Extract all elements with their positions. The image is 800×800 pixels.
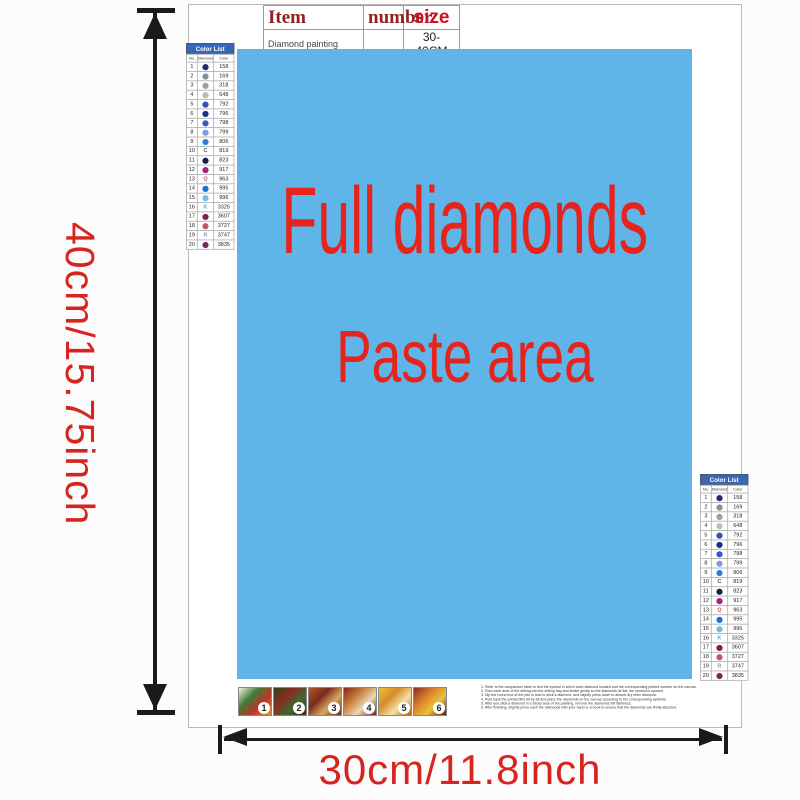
horizontal-arrow-right-cap [724,725,728,754]
color-list-row: 183727 [186,221,234,230]
color-list-row: 1158 [700,493,748,502]
color-list-row: 14995 [700,615,748,624]
step-number-badge: 4 [363,702,375,714]
diamond-dot-icon [716,504,722,510]
step-thumbnail: 2 [273,687,307,716]
diamond-symbol-cell: C [711,577,727,586]
color-row-number: 13 [186,174,197,183]
step-number-badge: 6 [433,702,445,714]
color-code: 318 [214,81,234,90]
diamond-symbol-cell: C [197,146,213,155]
diamond-letter-symbol: Q [717,607,721,612]
arrow-right-icon [699,728,723,746]
color-row-number: 10 [700,577,711,586]
color-row-number: 4 [700,521,711,530]
step-number-badge: 5 [398,702,410,714]
color-row-number: 11 [186,156,197,165]
color-list-row: 3318 [186,81,234,90]
product-size-diagram: 40cm/15.75inch Item number size Diamond … [0,0,800,800]
color-row-number: 15 [700,624,711,633]
color-row-number: 19 [700,662,711,671]
color-code: 792 [214,100,234,109]
diamond-dot-icon [716,644,722,650]
diamond-dot-icon [202,195,208,201]
diamond-symbol-cell [711,568,727,577]
colorlist-no-header: No. [700,485,711,493]
color-row-number: 6 [700,540,711,549]
color-row-number: 17 [186,212,197,221]
step-number-badge: 1 [258,702,270,714]
vertical-arrow-bottom-cap [137,710,175,715]
color-code: 3325 [214,203,234,212]
diamond-dot-icon [202,223,208,229]
color-list-rows: 11582169331846485792679677988799980610C8… [186,62,234,249]
diamond-dot-icon [716,570,722,576]
color-code: 963 [728,605,748,614]
colorlist-diamond-header: Diamond [711,485,727,493]
color-list-row: 203835 [700,671,748,680]
color-list-left: Color List No. Diamond Color 11582169331… [186,43,234,250]
horizontal-arrow-left-cap [218,725,222,754]
color-row-number: 3 [186,81,197,90]
diamond-symbol-cell: Q [197,174,213,183]
diamond-dot-icon [716,551,722,557]
color-code: 796 [728,540,748,549]
diamond-symbol-cell: K [711,634,727,643]
color-code: 917 [214,165,234,174]
diamond-symbol-cell: R [197,231,213,240]
diamond-symbol-cell [197,81,213,90]
color-row-number: 9 [700,568,711,577]
color-code: 996 [214,193,234,202]
color-list-row: 5792 [186,100,234,109]
diamond-dot-icon [202,185,208,191]
colorlist-diamond-header: Diamond [197,54,213,62]
diamond-symbol-cell [197,156,213,165]
diamond-symbol-cell [711,596,727,605]
diamond-symbol-cell [197,128,213,137]
color-list-row: 3318 [700,512,748,521]
diamond-symbol-cell [197,109,213,118]
color-row-number: 17 [700,643,711,652]
diamond-letter-symbol: Q [203,176,207,181]
color-row-number: 2 [186,71,197,80]
color-row-number: 12 [186,165,197,174]
diamond-symbol-cell [711,559,727,568]
color-code: 799 [728,559,748,568]
color-row-number: 14 [700,615,711,624]
color-row-number: 9 [186,137,197,146]
diamond-letter-symbol: R [204,233,208,238]
color-row-number: 15 [186,193,197,202]
color-list-row: 2169 [186,71,234,80]
diamond-symbol-cell [711,512,727,521]
diamond-dot-icon [202,120,208,126]
color-list-row: 4648 [700,521,748,530]
color-list-row: 15996 [700,624,748,633]
color-code: 3607 [214,212,234,221]
diamond-dot-icon [202,64,208,70]
diamond-symbol-cell [711,652,727,661]
diamond-letter-symbol: C [204,148,208,153]
instructions-text: 1. Refer to the comparison table to find… [481,685,714,710]
diamond-dot-icon [716,598,722,604]
colorlist-color-header: Color [214,54,234,62]
color-list-title: Color List [700,474,748,485]
diamond-symbol-cell [197,118,213,127]
color-list-right: Color List No. Diamond Color 11582169331… [700,474,748,681]
color-list-row: 6796 [186,109,234,118]
step-thumbnails-strip: 123456 [238,687,447,716]
diamond-dot-icon [202,110,208,116]
color-row-number: 5 [700,531,711,540]
arrow-up-icon [143,13,167,39]
color-list-row: 15996 [186,193,234,202]
color-list-row: 11823 [186,156,234,165]
diamond-letter-symbol: R [718,664,722,669]
colorlist-color-header: Color [728,485,748,493]
step-number-badge: 3 [328,702,340,714]
color-list-row: 9806 [186,137,234,146]
diamond-symbol-cell [197,240,213,249]
color-row-number: 14 [186,184,197,193]
color-code: 648 [214,90,234,99]
color-row-number: 11 [700,587,711,596]
color-list-row: 7798 [186,118,234,127]
color-list-row: 203835 [186,240,234,249]
color-row-number: 6 [186,109,197,118]
canvas-sheet: Item number size Diamond painting 30-40C… [188,4,742,728]
diamond-dot-icon [202,73,208,79]
color-code: 3835 [728,671,748,680]
color-list-row: 10C819 [186,146,234,155]
diamond-dot-icon [716,523,722,529]
diamond-dot-icon [716,513,722,519]
color-row-number: 20 [700,671,711,680]
color-list-row: 173607 [186,212,234,221]
color-code: 792 [728,531,748,540]
diamond-symbol-cell [711,643,727,652]
color-code: 798 [728,549,748,558]
paste-area: Full diamonds Paste area [237,49,692,679]
color-row-number: 13 [700,605,711,614]
color-list-row: 173607 [700,643,748,652]
diamond-letter-symbol: K [718,635,722,640]
color-list-row: 12917 [186,165,234,174]
diamond-dot-icon [716,495,722,501]
color-list-row: 5792 [700,531,748,540]
diamond-letter-symbol: K [204,204,208,209]
color-code: 3835 [214,240,234,249]
diamond-symbol-cell [197,184,213,193]
diamond-symbol-cell [711,587,727,596]
diamond-dot-icon [716,626,722,632]
vertical-arrow-line [153,12,157,712]
color-code: 917 [728,596,748,605]
diamond-dot-icon [202,167,208,173]
color-code: 995 [728,615,748,624]
diamond-symbol-cell [711,624,727,633]
diamond-symbol-cell [197,62,213,71]
color-code: 3607 [728,643,748,652]
color-code: 799 [214,128,234,137]
diamond-symbol-cell: R [711,662,727,671]
diamond-dot-icon [202,129,208,135]
color-list-row: 4648 [186,90,234,99]
step-thumbnail: 1 [238,687,272,716]
color-row-number: 12 [700,596,711,605]
color-list-row: 19R3747 [700,662,748,671]
diamond-dot-icon [202,139,208,145]
color-code: 995 [214,184,234,193]
color-row-number: 8 [700,559,711,568]
color-code: 3325 [728,634,748,643]
diamond-symbol-cell [711,502,727,511]
color-code: 3727 [728,652,748,661]
diamond-symbol-cell [711,549,727,558]
diamond-symbol-cell [711,615,727,624]
diamond-dot-icon [202,101,208,107]
paste-area-title-line2: Paste area [336,316,594,397]
color-row-number: 5 [186,100,197,109]
color-row-number: 7 [186,118,197,127]
color-list-row: 8799 [186,128,234,137]
diamond-letter-symbol: C [718,579,722,584]
color-row-number: 16 [700,634,711,643]
diamond-dot-icon [716,541,722,547]
diamond-dot-icon [716,532,722,538]
diamond-dot-icon [202,157,208,163]
diamond-dot-icon [716,673,722,679]
color-code: 318 [728,512,748,521]
color-row-number: 16 [186,203,197,212]
color-list-row: 10C819 [700,577,748,586]
color-list-row: 16K3325 [700,634,748,643]
diamond-symbol-cell [197,193,213,202]
color-code: 3747 [728,662,748,671]
diamond-dot-icon [716,588,722,594]
diamond-dot-icon [716,654,722,660]
color-row-number: 1 [700,493,711,502]
color-code: 648 [728,521,748,530]
color-row-number: 4 [186,90,197,99]
color-row-number: 1 [186,62,197,71]
horizontal-arrow-line [224,738,722,741]
diamond-symbol-cell [197,137,213,146]
color-code: 169 [214,71,234,80]
color-code: 823 [214,156,234,165]
color-code: 3727 [214,221,234,230]
diamond-symbol-cell: K [197,203,213,212]
color-list-row: 13Q963 [186,174,234,183]
color-code: 169 [728,502,748,511]
diamond-dot-icon [202,242,208,248]
diamond-symbol-cell [711,493,727,502]
color-row-number: 7 [700,549,711,558]
color-list-row: 183727 [700,652,748,661]
colorlist-no-header: No. [186,54,197,62]
color-list-row: 14995 [186,184,234,193]
color-code: 158 [214,62,234,71]
diamond-symbol-cell [711,531,727,540]
diamond-dot-icon [202,82,208,88]
color-code: 819 [728,577,748,586]
step-thumbnail: 6 [413,687,447,716]
color-row-number: 18 [186,221,197,230]
diamond-symbol-cell [197,71,213,80]
step-thumbnail: 4 [343,687,377,716]
color-list-row: 6796 [700,540,748,549]
color-list-row: 2169 [700,502,748,511]
paste-area-title-line1: Full diamonds [281,169,648,274]
number-header: number [364,6,404,30]
color-row-number: 19 [186,231,197,240]
diamond-symbol-cell [711,671,727,680]
color-row-number: 18 [700,652,711,661]
color-code: 806 [214,137,234,146]
color-list-row: 16K3325 [186,203,234,212]
diamond-symbol-cell [197,221,213,230]
width-dimension-label: 30cm/11.8inch [260,746,660,794]
color-code: 963 [214,174,234,183]
color-row-number: 10 [186,146,197,155]
color-code: 823 [728,587,748,596]
color-list-row: 13Q963 [700,605,748,614]
color-code: 158 [728,493,748,502]
color-list-row: 9806 [700,568,748,577]
color-list-row: 12917 [700,596,748,605]
color-list-row: 7798 [700,549,748,558]
height-dimension-label: 40cm/15.75inch [56,222,103,562]
diamond-symbol-cell [197,100,213,109]
color-list-row: 1158 [186,62,234,71]
diamond-symbol-cell [197,90,213,99]
color-list-row: 11823 [700,587,748,596]
instruction-line: 6. After finishing, slightly press each … [481,706,714,710]
color-list-row: 19R3747 [186,231,234,240]
diamond-symbol-cell [711,540,727,549]
color-code: 798 [214,118,234,127]
diamond-symbol-cell [711,521,727,530]
color-code: 796 [214,109,234,118]
arrow-left-icon [223,728,247,746]
color-row-number: 2 [700,502,711,511]
color-row-number: 20 [186,240,197,249]
item-header: Item [264,6,364,30]
diamond-symbol-cell [197,165,213,174]
color-code: 3747 [214,231,234,240]
color-code: 996 [728,624,748,633]
step-thumbnail: 3 [308,687,342,716]
color-list-title: Color List [186,43,234,54]
diamond-symbol-cell: Q [711,605,727,614]
step-thumbnail: 5 [378,687,412,716]
diamond-dot-icon [202,213,208,219]
arrow-down-icon [143,684,167,710]
color-code: 806 [728,568,748,577]
color-row-number: 3 [700,512,711,521]
color-list-rows: 11582169331846485792679677988799980610C8… [700,493,748,680]
diamond-dot-icon [716,616,722,622]
diamond-symbol-cell [197,212,213,221]
diamond-dot-icon [716,560,722,566]
step-number-badge: 2 [293,702,305,714]
color-row-number: 8 [186,128,197,137]
diamond-dot-icon [202,92,208,98]
color-code: 819 [214,146,234,155]
color-list-row: 8799 [700,559,748,568]
